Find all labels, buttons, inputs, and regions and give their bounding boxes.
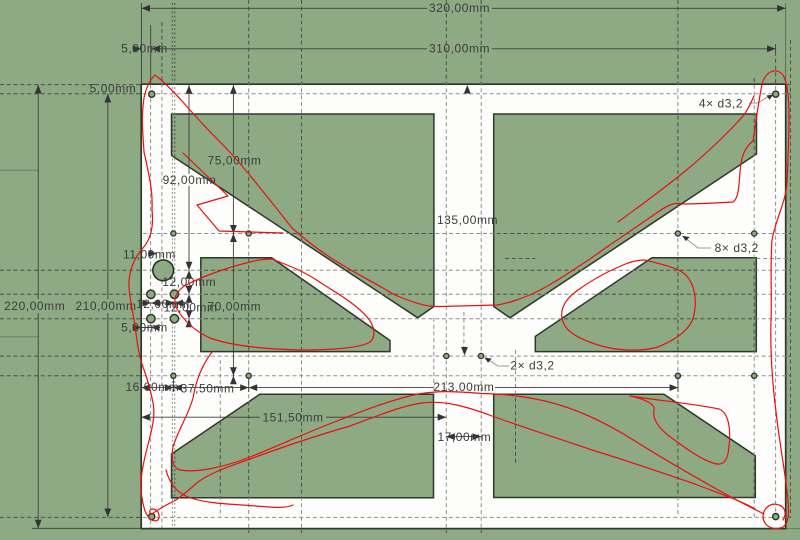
svg-text:92,00mm: 92,00mm [163, 173, 217, 187]
svg-text:310,00mm: 310,00mm [429, 42, 490, 56]
svg-text:135,00mm: 135,00mm [437, 213, 498, 227]
svg-text:2× d3,2: 2× d3,2 [510, 359, 554, 373]
svg-text:17,00mm: 17,00mm [437, 430, 491, 444]
svg-text:12,00mm: 12,00mm [162, 275, 216, 289]
svg-text:320,00mm: 320,00mm [429, 1, 490, 15]
svg-text:210,00mm: 210,00mm [75, 299, 136, 313]
svg-text:12,00mm: 12,00mm [136, 297, 190, 311]
svg-text:75,00mm: 75,00mm [208, 154, 262, 168]
svg-text:5,00mm: 5,00mm [90, 82, 137, 96]
svg-text:16,00mm: 16,00mm [125, 380, 179, 394]
svg-text:37,50mm: 37,50mm [181, 382, 235, 396]
svg-text:151,50mm: 151,50mm [262, 410, 323, 424]
svg-text:11,00mm: 11,00mm [123, 247, 176, 261]
svg-text:5,00mm: 5,00mm [121, 42, 168, 56]
svg-text:70,00mm: 70,00mm [207, 300, 261, 314]
svg-text:5,00mm: 5,00mm [121, 321, 168, 335]
svg-text:220,00mm: 220,00mm [4, 299, 65, 313]
svg-text:8× d3,2: 8× d3,2 [715, 241, 759, 255]
svg-text:4× d3,2: 4× d3,2 [699, 97, 743, 111]
